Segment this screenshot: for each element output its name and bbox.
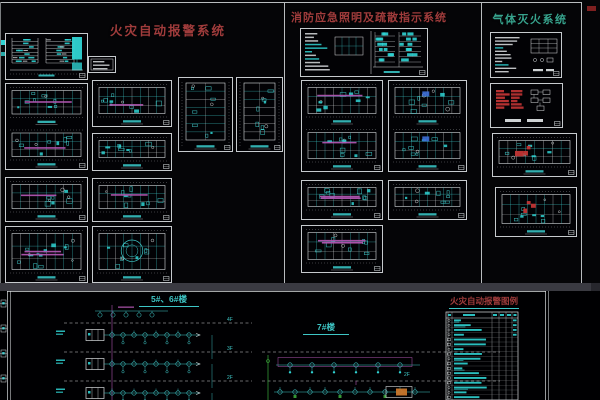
riser-diagram-1[interactable]: 4F3F2F [56,305,252,400]
riser-1-title: 5#、6#楼 [139,293,199,307]
drawing-frame-plan-5[interactable] [92,80,172,127]
drawing-frame-plan2-12[interactable] [301,80,383,172]
system-diagram-panel[interactable]: 4F3F2F2F 5#、6#楼 7#楼 火灾自动报警图例 [0,291,600,400]
legend-table[interactable] [446,312,518,400]
drawing-frame-plan-7[interactable] [92,178,172,222]
panel-divider-1 [284,2,285,283]
drawing-frame-plan2-13[interactable] [388,80,467,172]
frame-linework [496,188,576,236]
drawing-frame-planv-9[interactable] [178,77,233,152]
frame-linework [6,34,87,79]
frame-linework [89,57,115,72]
drawing-frame-plan-19[interactable] [492,133,577,177]
drawing-frame-combo-11[interactable] [300,28,428,77]
sheet-border-top [0,2,582,3]
drawing-frame-plan-14[interactable] [301,180,383,220]
svg-text:2F: 2F [227,375,233,381]
frame-linework [491,33,561,77]
frame-linework [302,181,382,219]
frame-linework [93,227,171,282]
panel-divider-2 [481,2,482,283]
frame-linework [93,134,171,170]
frame-linework [302,81,382,171]
corner-red-mark [587,6,596,11]
frame-linework [302,226,382,272]
drawing-frame-mini-4[interactable] [88,56,116,73]
panel-divider-3 [581,2,582,283]
svg-text:3F: 3F [227,346,233,352]
frame-linework [6,227,87,282]
emergency-lighting-system-title: 消防应急照明及疏散指示系统 [291,9,435,25]
gas-suppression-system-title: 气体灭火系统 [487,11,573,27]
drawing-frame-plan-16[interactable] [301,225,383,273]
svg-text:4F: 4F [227,317,233,323]
drawing-frame-planv-10[interactable] [236,77,283,152]
drawing-frame-rednotes-18[interactable] [490,83,563,128]
frame-linework [389,81,466,171]
frame-linework [301,29,427,76]
frame-linework [237,78,282,151]
svg-text:2F: 2F [404,372,410,378]
drawing-frame-plan-3[interactable] [5,226,88,283]
drawing-frame-plan2-1[interactable] [5,83,88,170]
frame-linework [93,179,171,221]
frame-linework [93,81,171,126]
cad-canvas: 火灾自动报警系统 消防应急照明及疏散指示系统 气体灭火系统 4F3F2F2F 5… [0,0,600,400]
drawing-frame-plan-2[interactable] [5,177,88,222]
drawing-frame-elev-0[interactable] [5,33,88,80]
riser-2-title: 7#楼 [303,321,349,335]
frame-linework [6,178,87,221]
separator-band [0,283,600,291]
drawing-frame-plan-8[interactable] [92,226,172,283]
frame-linework [179,78,232,151]
drawing-frame-notes-17[interactable] [490,32,562,78]
drawing-frame-plan-20[interactable] [495,187,577,237]
fire-alarm-system-title: 火灾自动报警系统 [100,20,236,39]
frame-linework [389,181,466,219]
drawing-frame-plan-15[interactable] [388,180,467,220]
frame-linework [6,84,87,169]
frame-linework [493,134,576,176]
drawing-frame-plan-6[interactable] [92,133,172,171]
frame-linework [491,84,562,127]
legend-table-title: 火灾自动报警图例 [449,295,519,309]
